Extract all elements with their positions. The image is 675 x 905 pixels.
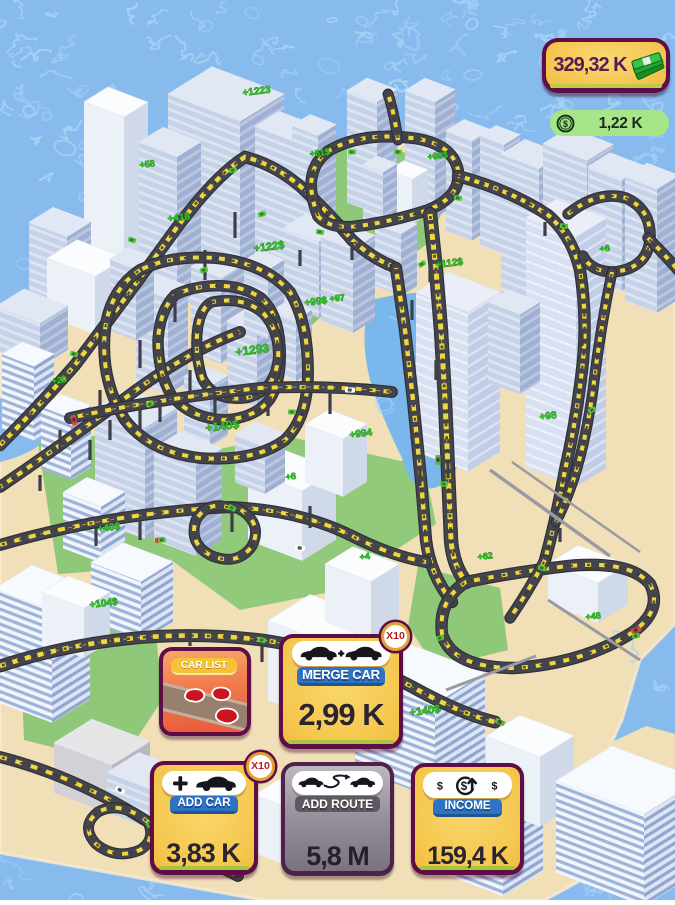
svg-text:+58: +58 (139, 158, 155, 170)
svg-text:+62: +62 (477, 550, 493, 562)
svg-text:+20: +20 (51, 374, 67, 386)
svg-text:+97: +97 (329, 292, 345, 304)
svg-text:+8: +8 (285, 471, 296, 482)
svg-text:+4: +4 (359, 551, 370, 562)
svg-text:+6: +6 (599, 243, 610, 254)
svg-text:$: $ (437, 781, 443, 793)
svg-text:$: $ (461, 779, 468, 793)
svg-text:+48: +48 (585, 610, 601, 622)
svg-text:$: $ (563, 119, 568, 129)
svg-text:+98: +98 (539, 410, 558, 423)
svg-text:$: $ (492, 781, 498, 793)
